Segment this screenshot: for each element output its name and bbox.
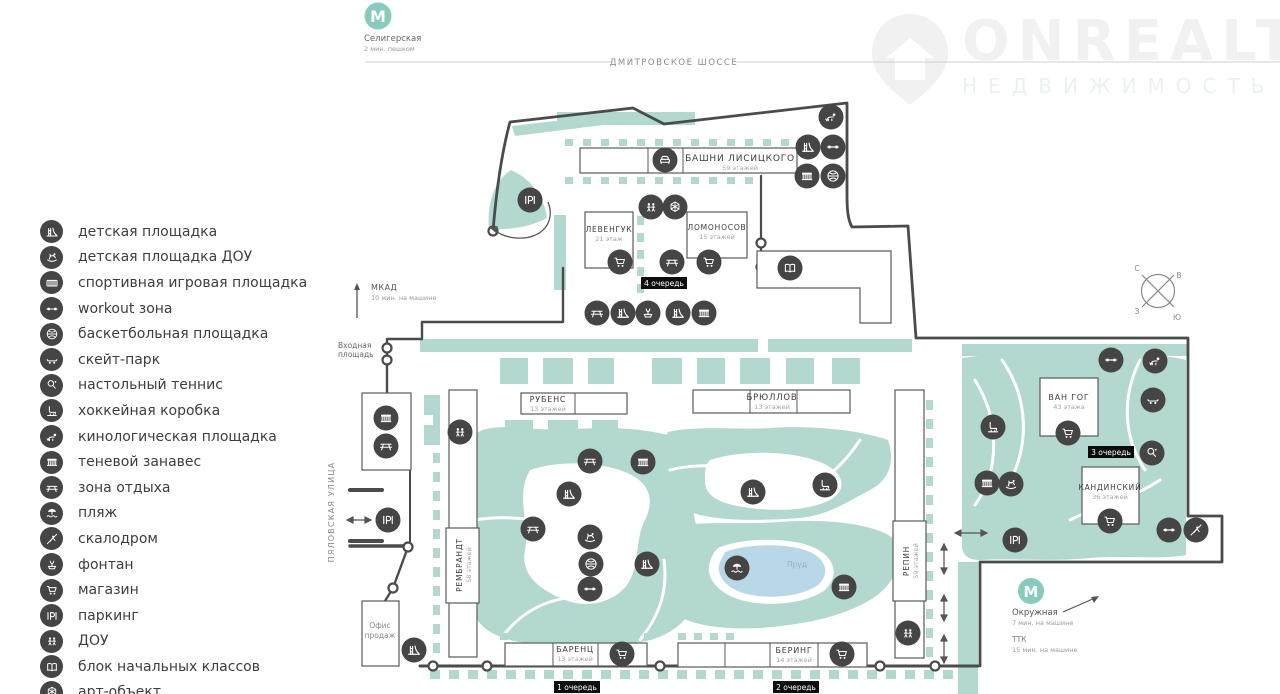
- shop-icon: [1056, 421, 1081, 446]
- site-plan-page: { "header": { "metro": {"name": "Селигер…: [0, 0, 1280, 694]
- playground-icon: [557, 482, 582, 507]
- legend-item-label: спортивная игровая площадка: [78, 275, 307, 291]
- building-floors: 43 этажа: [1053, 403, 1085, 411]
- horse-icon: [999, 472, 1024, 497]
- building-floors: 36 этажей: [1092, 493, 1128, 501]
- parking-icon: [376, 508, 401, 533]
- building-floors: 21 этаж: [595, 235, 623, 243]
- climb-icon: [40, 527, 63, 550]
- school-icon: [40, 655, 63, 678]
- shade-icon: [832, 575, 857, 600]
- rest-icon: [585, 301, 610, 326]
- playground-icon: [635, 552, 660, 577]
- rest-icon: [578, 449, 603, 474]
- building-bashni: БАШНИ ЛИСИЦКОГО59 этажей: [580, 148, 797, 173]
- legend-item-label: фонтан: [78, 557, 134, 573]
- legend-item: зона отдыха: [40, 475, 307, 501]
- street-label: ПЯЛОВСКАЯ УЛИЦА: [327, 462, 336, 563]
- legend-item: магазин: [40, 577, 307, 603]
- building-floors: 59 этажей: [722, 164, 758, 172]
- building-name: РЕМБРАНДТ: [455, 538, 464, 592]
- ttk-label: ТТК: [1011, 635, 1027, 644]
- pond-label: Пруд: [787, 560, 807, 569]
- parking-icon: [40, 604, 63, 627]
- building-name: БРЮЛЛОВ: [746, 393, 797, 403]
- parking-icon: [518, 188, 543, 213]
- metro-name: Селигерская: [364, 34, 421, 44]
- horse-icon: [578, 525, 603, 550]
- playground-icon: [796, 135, 821, 160]
- building-floors: 15 этажей: [699, 233, 735, 241]
- playground-icon: [40, 220, 63, 243]
- legend-item: детская площадка: [40, 219, 307, 245]
- building-rubens: РУБЕНС13 этажей: [521, 393, 627, 414]
- metro-note: 2 мин. пешком: [364, 45, 415, 53]
- climb-icon: [1184, 518, 1209, 543]
- legend-item-label: теневой занавес: [78, 454, 201, 470]
- legend-item: паркинг: [40, 603, 307, 629]
- phase-chip: 3 очередь: [1088, 446, 1134, 458]
- compass: С В З Ю: [1134, 264, 1181, 322]
- basketball-icon: [579, 552, 604, 577]
- rest-icon: [40, 476, 63, 499]
- legend-item: фонтан: [40, 552, 307, 578]
- tennis-icon: [40, 374, 63, 397]
- building-name: ЛОМОНОСОВ: [688, 223, 747, 232]
- building-rembrandt: РЕМБРАНДТ58 этажей: [446, 528, 479, 603]
- map-legend: детская площадкадетская площадка ДОУспор…: [40, 219, 307, 694]
- legend-item-label: зона отдыха: [78, 480, 171, 496]
- legend-item: настольный теннис: [40, 373, 307, 399]
- shop-icon: [1098, 509, 1123, 534]
- dou-icon: [896, 621, 921, 646]
- legend-item-label: кинологическая площадка: [78, 429, 277, 445]
- legend-item: детская площадка ДОУ: [40, 245, 307, 271]
- compass-s: Ю: [1173, 313, 1181, 322]
- shade-icon: [975, 471, 1000, 496]
- sales-office-label: Офис: [369, 621, 390, 630]
- compass-e: В: [1176, 271, 1181, 280]
- mkad-pointer: МКАД 10 мин. на машине: [354, 283, 436, 318]
- basketball-icon: [821, 164, 846, 189]
- tennis-icon: [1140, 441, 1165, 466]
- dog-icon: [1143, 349, 1168, 374]
- shop-icon: [830, 642, 855, 667]
- building-name: БЕРИНГ: [775, 646, 812, 655]
- legend-item-label: скейт-парк: [78, 352, 160, 368]
- legend-item-label: настольный теннис: [78, 377, 223, 393]
- building-name: ЛЕВЕНГУК: [586, 225, 633, 234]
- legend-item: кинологическая площадка: [40, 424, 307, 450]
- hockey-icon: [981, 415, 1006, 440]
- legend-item-label: арт-объект: [78, 684, 161, 694]
- svg-text:площадь: площадь: [338, 350, 374, 359]
- hockey-icon: [813, 473, 838, 498]
- beach-icon: [40, 502, 63, 525]
- metro2-note: 7 мин. на машине: [1012, 619, 1073, 627]
- art-icon: [663, 195, 688, 220]
- legend-item: пляж: [40, 501, 307, 527]
- workout-icon: [40, 297, 63, 320]
- playground-icon: [402, 638, 427, 663]
- shop-icon: [610, 642, 635, 667]
- arrow-up-icon: [354, 283, 360, 290]
- svg-text:10 мин. на машине: 10 мин. на машине: [371, 294, 436, 302]
- legend-item-label: магазин: [78, 582, 139, 598]
- phase-chip: 2 очередь: [773, 681, 819, 693]
- metro-okruzhnaya: M Окружная 7 мин. на машине ТТК 15 мин. …: [1011, 578, 1099, 654]
- basketball-icon: [40, 323, 63, 346]
- art-icon: [40, 681, 63, 694]
- shop-icon: [697, 250, 722, 275]
- playground-icon: [611, 301, 636, 326]
- building-floors: 14 этажей: [776, 656, 812, 664]
- dog-icon: [40, 425, 63, 448]
- entrance-label: Входная: [338, 341, 371, 350]
- building-name: РЕПИН: [902, 546, 911, 576]
- sportground-icon: [40, 271, 63, 294]
- legend-item-label: пляж: [78, 505, 117, 521]
- phase-chip-label: 3 очередь: [1091, 448, 1131, 457]
- rest-icon: [521, 517, 546, 542]
- workout-icon: [1157, 518, 1182, 543]
- fountain-icon: [636, 301, 661, 326]
- workout-icon: [1099, 348, 1124, 373]
- legend-item: баскетбольная площадка: [40, 321, 307, 347]
- legend-item-label: ДОУ: [78, 633, 109, 649]
- entrance-road: [387, 268, 563, 394]
- legend-item: ДОУ: [40, 629, 307, 655]
- compass-w: З: [1135, 307, 1140, 316]
- workout-icon: [578, 577, 603, 602]
- school-icon: [778, 256, 803, 281]
- skate-icon: [1141, 388, 1166, 413]
- phase-chip: 1 очередь: [554, 681, 600, 693]
- building-name: БАШНИ ЛИСИЦКОГО: [685, 154, 795, 164]
- phase-chip-label: 1 очередь: [557, 683, 597, 692]
- compass-n: С: [1134, 264, 1139, 273]
- playground-icon: [741, 480, 766, 505]
- legend-item-label: баскетбольная площадка: [78, 326, 268, 342]
- hockey-icon: [40, 399, 63, 422]
- legend-item: скейт-парк: [40, 347, 307, 373]
- metro2-name: Окружная: [1012, 608, 1058, 618]
- building-name: РУБЕНС: [530, 395, 567, 404]
- phase-chip-label: 4 очередь: [644, 279, 684, 288]
- school-building: [757, 251, 891, 323]
- lounge-icon: [653, 148, 678, 173]
- building-name: БАРЕНЦ: [556, 645, 594, 654]
- svg-text:M: M: [1024, 583, 1039, 601]
- workout-icon: [821, 135, 846, 160]
- dou-icon: [448, 420, 473, 445]
- building-name: ВАН ГОГ: [1048, 393, 1089, 402]
- svg-text:M: M: [370, 7, 386, 26]
- svg-text:продаж: продаж: [365, 631, 396, 640]
- building-lomonosov: ЛОМОНОСОВ15 этажей: [687, 212, 747, 258]
- metro-seligerskaya: M Селигерская 2 мин. пешком: [364, 3, 421, 54]
- shade-icon: [631, 450, 656, 475]
- phase-chip-label: 2 очередь: [776, 683, 816, 692]
- building-floors: 13 этажей: [530, 405, 566, 413]
- legend-item: арт-объект: [40, 680, 307, 694]
- building-repin: РЕПИН59 этажей: [893, 521, 926, 601]
- legend-item-label: паркинг: [78, 608, 139, 624]
- skate-icon: [40, 348, 63, 371]
- shop-icon: [40, 579, 63, 602]
- legend-item-label: хоккейная коробка: [78, 403, 220, 419]
- legend-item-label: блок начальных классов: [78, 659, 260, 675]
- horse-icon: [40, 246, 63, 269]
- playground-icon: [666, 301, 691, 326]
- building-floors: 59 этажей: [912, 543, 920, 579]
- dog-icon: [819, 105, 844, 130]
- legend-item: блок начальных классов: [40, 654, 307, 680]
- shade-icon: [40, 451, 63, 474]
- shop-icon: [608, 250, 633, 275]
- legend-item-label: скалодром: [78, 531, 158, 547]
- legend-item: спортивная игровая площадка: [40, 270, 307, 296]
- legend-item-label: детская площадка: [78, 224, 217, 240]
- svg-text:МКАД: МКАД: [371, 283, 397, 292]
- legend-item-label: детская площадка ДОУ: [78, 249, 252, 265]
- fountain-icon: [40, 553, 63, 576]
- building-floors: 58 этажей: [465, 547, 473, 583]
- building-name: КАНДИНСКИЙ: [1079, 483, 1142, 492]
- legend-item: скалодром: [40, 526, 307, 552]
- shade-icon: [795, 164, 820, 189]
- phase-chip: 4 очередь: [641, 277, 687, 289]
- dou-icon: [639, 195, 664, 220]
- rest-icon: [660, 250, 685, 275]
- beach-icon: [725, 556, 750, 581]
- building-floors: 13 этажей: [557, 655, 593, 663]
- legend-item: хоккейная коробка: [40, 398, 307, 424]
- legend-item-label: workout зона: [78, 301, 173, 317]
- shade-icon: [692, 301, 717, 326]
- shade-icon: [374, 406, 399, 431]
- dou-icon: [40, 630, 63, 653]
- ttk-note: 15 мин. на машине: [1012, 646, 1077, 654]
- legend-item: workout зона: [40, 296, 307, 322]
- highway-label: ДМИТРОВСКОЕ ШОССЕ: [610, 58, 738, 68]
- legend-item: теневой занавес: [40, 449, 307, 475]
- building-floors: 13 этажей: [754, 403, 790, 411]
- parking-icon: [1003, 528, 1028, 553]
- building-bryullov: БРЮЛЛОВ13 этажей: [693, 390, 850, 413]
- rest-icon: [374, 434, 399, 459]
